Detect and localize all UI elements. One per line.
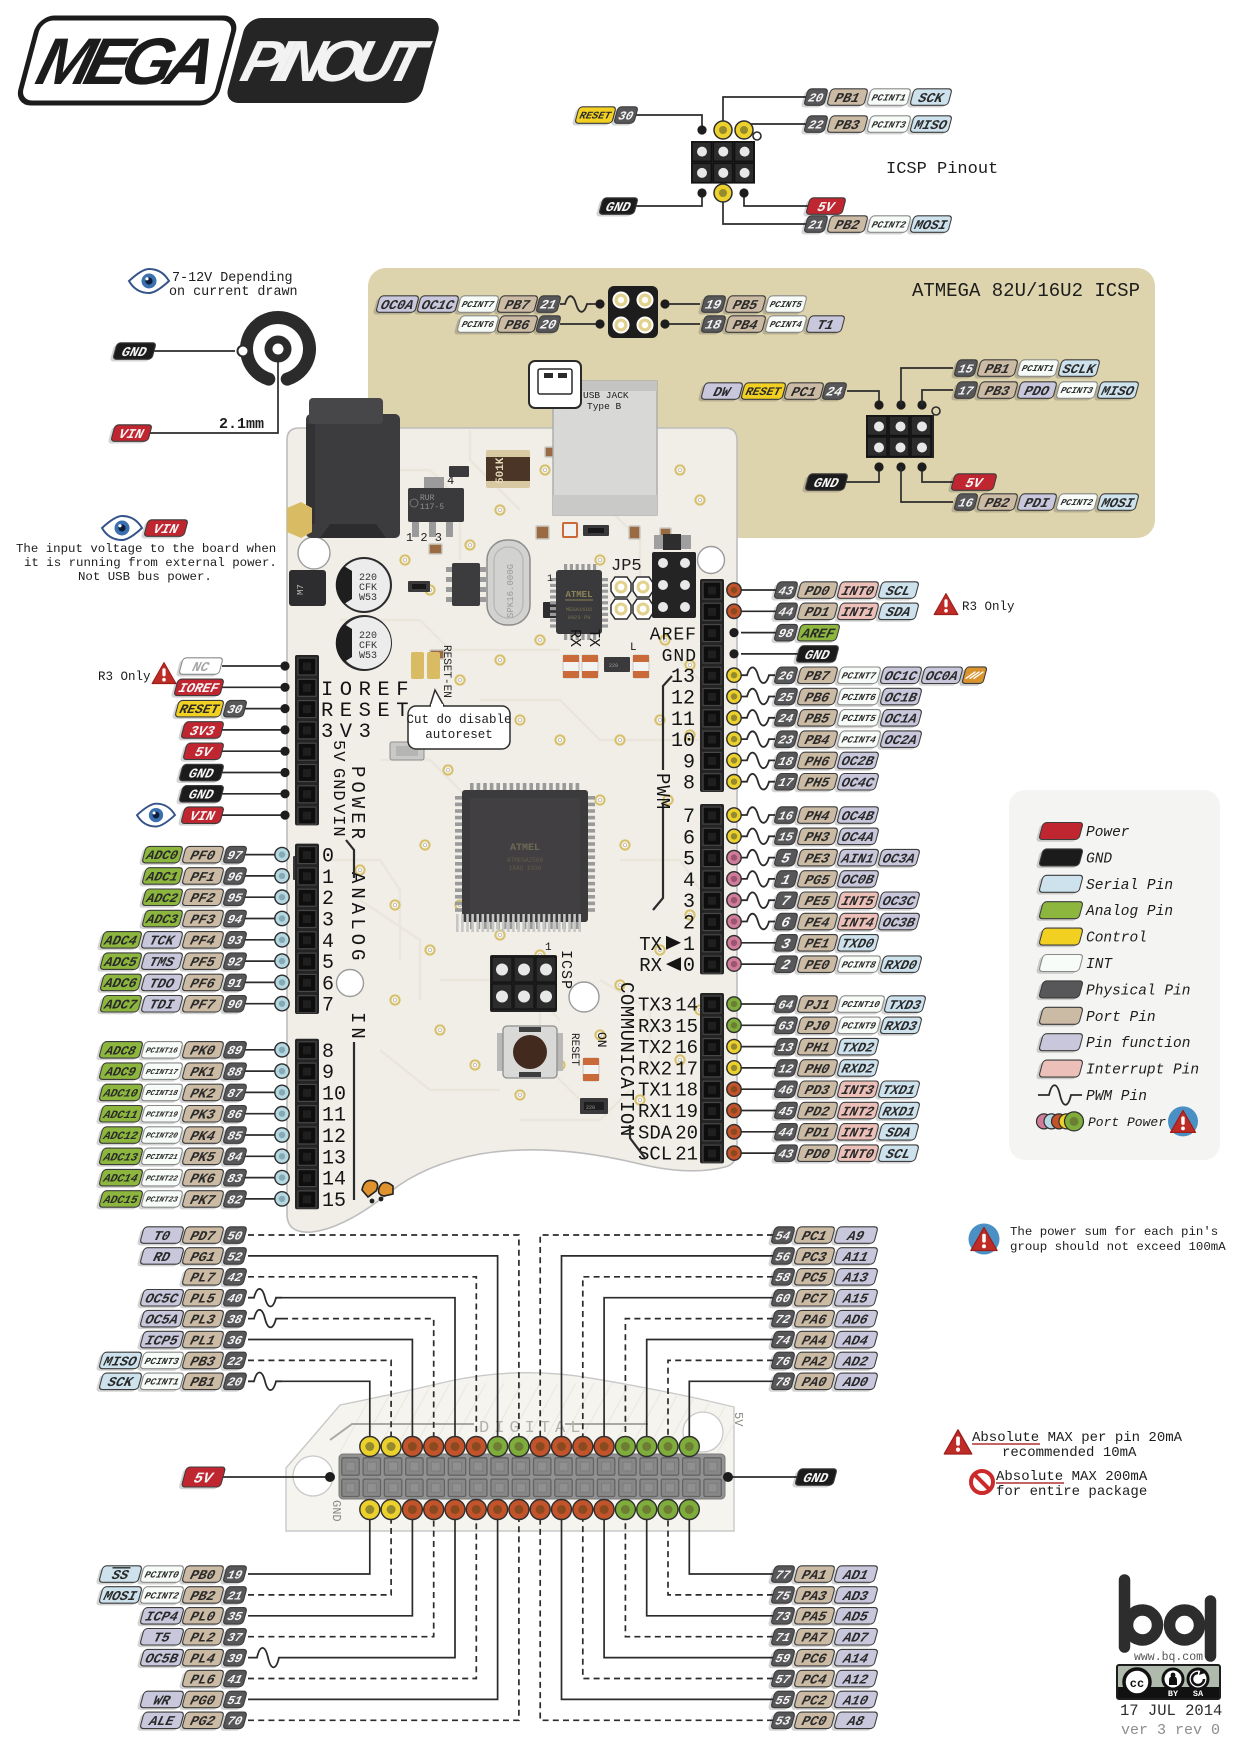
svg-text:OC1C: OC1C — [882, 670, 919, 685]
svg-text:PB1: PB1 — [188, 1376, 216, 1391]
svg-text:ADC9: ADC9 — [103, 1065, 138, 1080]
svg-text:0: 0 — [322, 846, 334, 869]
svg-text:9: 9 — [683, 751, 695, 774]
svg-text:ANALOG: ANALOG — [346, 872, 368, 964]
svg-text:TX1: TX1 — [638, 1080, 672, 1102]
svg-text:GND: GND — [187, 768, 216, 783]
svg-text:PC1: PC1 — [800, 1230, 828, 1245]
svg-text:16AU 1036: 16AU 1036 — [509, 865, 542, 872]
svg-text:PG0: PG0 — [188, 1694, 216, 1709]
svg-text:Analog Pin: Analog Pin — [1085, 904, 1173, 920]
svg-text:PB0: PB0 — [188, 1569, 216, 1584]
svg-text:ADC3: ADC3 — [144, 912, 180, 927]
svg-text:ICP5: ICP5 — [143, 1335, 180, 1350]
svg-text:PCINT10: PCINT10 — [841, 999, 882, 1010]
svg-text:PCINT5: PCINT5 — [768, 299, 803, 310]
svg-text:PCINT9: PCINT9 — [840, 1021, 877, 1032]
svg-text:17 JUL 2014: 17 JUL 2014 — [1120, 1702, 1222, 1720]
svg-text:AD1: AD1 — [840, 1569, 869, 1584]
svg-text:PK0: PK0 — [188, 1045, 216, 1060]
svg-text:AD3: AD3 — [840, 1590, 869, 1605]
svg-text:1 2 3: 1 2 3 — [406, 531, 442, 545]
svg-text:PB2: PB2 — [188, 1590, 216, 1605]
svg-text:PF2: PF2 — [188, 892, 216, 907]
svg-text:PB3: PB3 — [983, 385, 1011, 400]
svg-text:OC2B: OC2B — [839, 755, 875, 770]
svg-text:PB7: PB7 — [803, 670, 832, 685]
svg-text:INT0: INT0 — [839, 1148, 875, 1163]
svg-text:Cut do disable: Cut do disable — [406, 713, 511, 727]
svg-text:PD3: PD3 — [803, 1084, 831, 1099]
svg-text:Pin function: Pin function — [1086, 1036, 1190, 1052]
svg-text:PH6: PH6 — [803, 755, 831, 770]
svg-text:OC4B: OC4B — [839, 810, 875, 825]
svg-text:5V: 5V — [328, 740, 347, 762]
svg-text:Serial Pin: Serial Pin — [1086, 878, 1173, 894]
svg-text:recommended 10mA: recommended 10mA — [1002, 1445, 1137, 1461]
svg-text:group should not exceed 100mA: group should not exceed 100mA — [1010, 1240, 1226, 1254]
svg-text:PCINT2: PCINT2 — [143, 1590, 180, 1601]
svg-text:VIN: VIN — [117, 428, 146, 443]
svg-text:SA: SA — [1193, 1689, 1204, 1699]
svg-text:AD5: AD5 — [840, 1611, 870, 1626]
svg-text:PJ0: PJ0 — [803, 1020, 831, 1035]
svg-text:OC0A: OC0A — [379, 299, 415, 314]
svg-text:SDA: SDA — [884, 1127, 912, 1142]
svg-text:1: 1 — [683, 934, 695, 957]
svg-text:220: 220 — [586, 1105, 595, 1111]
svg-text:ICSP: ICSP — [557, 950, 574, 990]
svg-text:TX3: TX3 — [638, 995, 672, 1017]
svg-text:PL2: PL2 — [188, 1632, 216, 1647]
svg-text:SDA: SDA — [638, 1122, 673, 1144]
svg-text:PC5: PC5 — [800, 1272, 829, 1287]
svg-text:PCINT6: PCINT6 — [460, 319, 495, 330]
svg-text:BY: BY — [1168, 1689, 1179, 1699]
svg-text:PB7: PB7 — [503, 299, 532, 314]
svg-text:ADC11: ADC11 — [101, 1109, 139, 1122]
svg-text:AD6: AD6 — [840, 1314, 869, 1329]
svg-text:PF7: PF7 — [188, 999, 217, 1014]
svg-text:PB6: PB6 — [503, 319, 531, 334]
svg-text:PB4: PB4 — [731, 319, 759, 334]
svg-text:RESET-EN: RESET-EN — [440, 645, 452, 698]
svg-text:OC4A: OC4A — [839, 831, 875, 846]
svg-text:TX: TX — [639, 934, 662, 956]
svg-text:GND: GND — [801, 1472, 830, 1487]
svg-text:PE0: PE0 — [803, 959, 831, 974]
svg-text:A10: A10 — [840, 1694, 869, 1709]
svg-text:MOSI: MOSI — [1098, 497, 1136, 512]
svg-text:A11: A11 — [840, 1251, 869, 1266]
svg-text:PWM Pin: PWM Pin — [1086, 1089, 1147, 1105]
svg-text:GND: GND — [604, 201, 633, 216]
svg-text:PCINT21: PCINT21 — [145, 1154, 179, 1162]
svg-text:INT: INT — [1086, 957, 1113, 973]
svg-text:IOREF: IOREF — [321, 679, 415, 702]
svg-text:AD4: AD4 — [840, 1335, 869, 1350]
svg-text:PK4: PK4 — [188, 1130, 216, 1145]
svg-text:PC0: PC0 — [800, 1715, 828, 1730]
svg-text:0: 0 — [683, 955, 695, 978]
svg-text:MEGA16U2: MEGA16U2 — [566, 606, 592, 613]
svg-text:PG5: PG5 — [803, 874, 832, 889]
svg-text:PA2: PA2 — [800, 1355, 828, 1370]
svg-text:PCINT0: PCINT0 — [143, 1570, 180, 1581]
svg-text:501K: 501K — [495, 457, 507, 484]
svg-text:ATMEGA2560: ATMEGA2560 — [507, 857, 543, 864]
svg-text:OC0A: OC0A — [923, 670, 959, 685]
svg-text:R3 Only: R3 Only — [962, 600, 1015, 614]
svg-text:Port Power: Port Power — [1088, 1115, 1166, 1130]
svg-text:PF0: PF0 — [188, 850, 216, 865]
svg-text:ADC1: ADC1 — [144, 870, 180, 885]
svg-text:INT2: INT2 — [839, 1105, 875, 1120]
svg-text:OC5A: OC5A — [143, 1314, 179, 1329]
svg-text:TX: TX — [585, 629, 602, 647]
svg-text:RXD1: RXD1 — [880, 1105, 916, 1120]
svg-text:for entire package: for entire package — [996, 1484, 1147, 1500]
svg-text:USB JACK: USB JACK — [583, 390, 629, 401]
svg-text:RX: RX — [639, 955, 662, 977]
svg-text:2: 2 — [683, 913, 695, 936]
svg-text:ALE: ALE — [146, 1715, 176, 1730]
svg-text:PH3: PH3 — [803, 831, 831, 846]
svg-text:cc: cc — [1130, 1677, 1144, 1691]
svg-text:PG1: PG1 — [188, 1251, 216, 1266]
svg-text:COMMUNICATION: COMMUNICATION — [615, 982, 637, 1137]
svg-text:PH5: PH5 — [803, 777, 832, 792]
svg-text:Power: Power — [1086, 825, 1130, 841]
svg-text:PCINT17: PCINT17 — [145, 1069, 179, 1077]
svg-text:RESET: RESET — [321, 700, 415, 723]
svg-text:PG2: PG2 — [188, 1715, 216, 1730]
svg-text:2.1mm: 2.1mm — [219, 416, 264, 433]
svg-text:PE5: PE5 — [803, 895, 832, 910]
svg-text:PDI: PDI — [1022, 497, 1051, 512]
svg-text:SCLK: SCLK — [1060, 363, 1098, 378]
svg-text:DIGITAL: DIGITAL — [479, 1419, 585, 1438]
svg-text:7: 7 — [683, 806, 695, 829]
svg-text:R3 Only: R3 Only — [98, 670, 151, 684]
svg-text:L: L — [630, 642, 637, 654]
svg-text:IOREF: IOREF — [177, 682, 222, 697]
svg-text:PC2: PC2 — [800, 1694, 828, 1709]
svg-text:PCINT5: PCINT5 — [840, 713, 877, 724]
svg-text:13: 13 — [671, 666, 695, 689]
svg-text:M7: M7 — [296, 584, 306, 595]
svg-text:PB6: PB6 — [803, 692, 831, 707]
svg-text:JP5: JP5 — [611, 557, 642, 576]
svg-text:ATMEL: ATMEL — [565, 590, 592, 600]
svg-text:RXD3: RXD3 — [882, 1020, 918, 1035]
svg-text:PD1: PD1 — [803, 606, 831, 621]
svg-text:OC2A: OC2A — [882, 734, 918, 749]
svg-text:PCINT3: PCINT3 — [1059, 385, 1094, 396]
svg-text:PD7: PD7 — [188, 1230, 217, 1245]
svg-text:12: 12 — [322, 1126, 346, 1149]
svg-text:13: 13 — [322, 1147, 346, 1170]
svg-text:PB1: PB1 — [983, 363, 1011, 378]
svg-text:0923 PH: 0923 PH — [567, 614, 590, 621]
svg-text:TDO: TDO — [147, 977, 176, 992]
svg-text:10: 10 — [671, 730, 695, 753]
svg-text:6: 6 — [322, 973, 334, 996]
svg-text:The power sum for each pin's: The power sum for each pin's — [1010, 1225, 1218, 1239]
svg-text:A14: A14 — [840, 1653, 869, 1668]
svg-text:Physical Pin: Physical Pin — [1086, 983, 1190, 999]
svg-text:PE1: PE1 — [803, 938, 831, 953]
svg-text:POWER: POWER — [346, 766, 368, 843]
svg-text:1: 1 — [322, 867, 334, 890]
svg-text:TXD3: TXD3 — [886, 999, 922, 1014]
svg-text:7-12V Depending: 7-12V Depending — [172, 271, 293, 286]
svg-text:OC5C: OC5C — [143, 1293, 180, 1308]
svg-text:PL5: PL5 — [188, 1293, 217, 1308]
svg-text:RESET: RESET — [744, 385, 783, 399]
svg-text:AREF: AREF — [650, 626, 697, 646]
svg-text:PCINT7: PCINT7 — [840, 671, 877, 682]
svg-text:PC6: PC6 — [800, 1653, 828, 1668]
svg-text:5V: 5V — [731, 1412, 745, 1427]
svg-text:14: 14 — [322, 1169, 346, 1192]
svg-text:Not USB bus power.: Not USB bus power. — [78, 570, 212, 584]
svg-text:ADC4: ADC4 — [101, 935, 138, 950]
svg-text:RXD2: RXD2 — [839, 1063, 875, 1078]
svg-text:18: 18 — [675, 1080, 698, 1102]
svg-text:on current drawn: on current drawn — [169, 285, 298, 300]
svg-text:PH1: PH1 — [803, 1042, 831, 1057]
svg-text:ADC5: ADC5 — [101, 956, 138, 971]
svg-text:PC1: PC1 — [789, 386, 817, 401]
svg-text:220: 220 — [609, 663, 618, 669]
svg-text:PD0: PD0 — [803, 1148, 831, 1163]
svg-text:7: 7 — [322, 995, 334, 1018]
svg-text:PL0: PL0 — [188, 1611, 216, 1626]
svg-text:3: 3 — [322, 910, 334, 933]
svg-text:PCINT23: PCINT23 — [145, 1197, 179, 1205]
svg-text:GND: GND — [803, 649, 832, 664]
svg-text:INT1: INT1 — [839, 1127, 875, 1142]
svg-text:ICP4: ICP4 — [143, 1611, 179, 1626]
svg-text:PC3: PC3 — [800, 1251, 828, 1266]
svg-text:17: 17 — [675, 1058, 698, 1080]
svg-text:PB2: PB2 — [983, 497, 1011, 512]
svg-text:RX3: RX3 — [638, 1016, 672, 1038]
svg-text:RXD0: RXD0 — [882, 959, 918, 974]
svg-text:20: 20 — [675, 1122, 698, 1144]
svg-text:www.bq.com: www.bq.com — [1134, 1651, 1203, 1664]
svg-text:PC4: PC4 — [800, 1674, 828, 1689]
svg-text:MISO: MISO — [1098, 385, 1135, 400]
svg-text:A15: A15 — [840, 1293, 870, 1308]
svg-text:PL4: PL4 — [188, 1653, 216, 1668]
svg-text:RESET: RESET — [178, 702, 222, 717]
svg-text:PB5: PB5 — [803, 713, 832, 728]
svg-text:OC3B: OC3B — [880, 916, 916, 931]
svg-text:OC1C: OC1C — [419, 299, 456, 314]
svg-text:PH0: PH0 — [803, 1063, 831, 1078]
svg-text:OC3C: OC3C — [880, 895, 917, 910]
svg-text:OC4C: OC4C — [839, 777, 876, 792]
svg-text:RESET: RESET — [578, 111, 613, 123]
svg-text:VIN: VIN — [328, 804, 347, 838]
svg-text:117-5: 117-5 — [420, 503, 444, 512]
svg-text:PCINT4: PCINT4 — [840, 735, 877, 746]
svg-text:PJ1: PJ1 — [803, 999, 831, 1014]
svg-text:GND: GND — [120, 346, 149, 361]
svg-text:MEGA: MEGA — [29, 25, 225, 99]
svg-text:PK1: PK1 — [188, 1066, 216, 1081]
svg-text:ATMEL: ATMEL — [510, 843, 540, 854]
svg-text:AREF: AREF — [799, 628, 837, 643]
svg-text:ADC2: ADC2 — [144, 891, 180, 906]
svg-text:PD2: PD2 — [803, 1106, 831, 1121]
svg-text:PCINT22: PCINT22 — [145, 1175, 179, 1183]
svg-text:RX: RX — [566, 629, 583, 647]
svg-text:PE4: PE4 — [803, 917, 831, 932]
svg-text:PCINT1: PCINT1 — [143, 1377, 180, 1388]
svg-text:Port Pin: Port Pin — [1086, 1010, 1156, 1026]
svg-text:INT3: INT3 — [839, 1084, 875, 1099]
svg-text:PH4: PH4 — [803, 810, 831, 825]
svg-text:8: 8 — [683, 773, 695, 796]
svg-text:PA4: PA4 — [800, 1335, 828, 1350]
svg-text:OC0B: OC0B — [839, 874, 875, 889]
svg-text:4: 4 — [322, 931, 334, 954]
svg-text:ADC7: ADC7 — [101, 999, 139, 1014]
svg-text:4: 4 — [683, 870, 695, 893]
svg-text:OC1B: OC1B — [882, 691, 918, 706]
svg-text:PK6: PK6 — [188, 1173, 216, 1188]
svg-text:PK2: PK2 — [188, 1087, 216, 1102]
svg-text:AD2: AD2 — [840, 1355, 869, 1370]
svg-text:INT5: INT5 — [839, 895, 875, 910]
svg-text:autoreset: autoreset — [425, 728, 493, 742]
svg-text:PL7: PL7 — [188, 1272, 217, 1287]
svg-text:SPK16.000G: SPK16.000G — [506, 564, 516, 618]
svg-text:PCINT3: PCINT3 — [143, 1356, 180, 1367]
svg-text:PCINT1: PCINT1 — [870, 93, 907, 104]
svg-text:PCINT6: PCINT6 — [840, 692, 877, 703]
svg-text:ADC10: ADC10 — [101, 1088, 139, 1101]
svg-text:Control: Control — [1086, 931, 1147, 947]
svg-text:VIN: VIN — [151, 523, 180, 538]
svg-text:GND: GND — [328, 768, 347, 802]
svg-text:OC1A: OC1A — [882, 713, 918, 728]
svg-text:ON: ON — [594, 1032, 609, 1048]
svg-text:PB5: PB5 — [731, 299, 760, 314]
svg-text:ADC6: ADC6 — [101, 977, 138, 992]
svg-text:PCINT4: PCINT4 — [768, 319, 803, 330]
svg-text:PD1: PD1 — [803, 1127, 831, 1142]
svg-text:PL1: PL1 — [188, 1335, 216, 1350]
svg-text:Interrupt Pin: Interrupt Pin — [1086, 1063, 1199, 1079]
svg-text:PF5: PF5 — [188, 956, 217, 971]
svg-text:6: 6 — [683, 827, 695, 850]
svg-text:PCINT20: PCINT20 — [145, 1133, 179, 1141]
svg-text:TXD1: TXD1 — [880, 1084, 916, 1099]
svg-text:TXD0: TXD0 — [839, 938, 875, 953]
svg-text:3: 3 — [683, 891, 695, 914]
svg-text:PK7: PK7 — [188, 1194, 217, 1209]
svg-text:PB3: PB3 — [188, 1355, 216, 1370]
svg-text:TMS: TMS — [147, 956, 176, 971]
svg-text:ADC12: ADC12 — [101, 1130, 139, 1143]
svg-text:ver 3 rev 0: ver 3 rev 0 — [1121, 1722, 1220, 1739]
svg-text:9: 9 — [322, 1062, 334, 1085]
svg-text:PD0: PD0 — [803, 585, 831, 600]
svg-text:SDA: SDA — [884, 606, 912, 621]
svg-text:PB2: PB2 — [833, 219, 861, 234]
svg-text:TXD2: TXD2 — [839, 1042, 875, 1057]
svg-text:PA0: PA0 — [800, 1376, 828, 1391]
svg-text:AD7: AD7 — [840, 1632, 870, 1647]
svg-text:OC3A: OC3A — [880, 853, 916, 868]
svg-text:PC7: PC7 — [800, 1293, 829, 1308]
svg-text:2: 2 — [322, 888, 334, 911]
svg-text:12: 12 — [671, 688, 695, 711]
svg-text:11: 11 — [322, 1105, 346, 1128]
svg-text:PCINT18: PCINT18 — [145, 1090, 179, 1098]
svg-text:IN: IN — [346, 1012, 368, 1043]
svg-text:VIN: VIN — [188, 810, 217, 825]
svg-text:PINOUT: PINOUT — [235, 29, 437, 94]
svg-text:OC5B: OC5B — [143, 1653, 180, 1668]
svg-text:PK3: PK3 — [188, 1109, 216, 1124]
svg-text:PF3: PF3 — [188, 914, 216, 929]
svg-text:INT1: INT1 — [839, 606, 875, 621]
svg-text:The input voltage to the board: The input voltage to the board when — [16, 542, 276, 556]
svg-text:MOSI: MOSI — [101, 1590, 139, 1605]
svg-text:Type B: Type B — [587, 401, 622, 412]
svg-text:ADC14: ADC14 — [101, 1173, 139, 1186]
svg-text:PCINT1: PCINT1 — [1020, 363, 1055, 374]
svg-text:ICSP Pinout: ICSP Pinout — [886, 160, 998, 179]
svg-text:3V3: 3V3 — [188, 725, 216, 740]
svg-text:5: 5 — [322, 952, 334, 975]
svg-text:10: 10 — [322, 1083, 346, 1106]
svg-text:ADC8: ADC8 — [103, 1043, 138, 1058]
svg-text:PA3: PA3 — [800, 1590, 828, 1605]
svg-text:MISO: MISO — [101, 1355, 139, 1370]
svg-text:PF6: PF6 — [188, 977, 216, 992]
svg-text:PF4: PF4 — [188, 935, 216, 950]
svg-text:16: 16 — [675, 1037, 698, 1059]
svg-text:15: 15 — [675, 1016, 698, 1038]
svg-text:RX2: RX2 — [638, 1058, 672, 1080]
svg-text:A12: A12 — [840, 1674, 869, 1689]
svg-text:PA7: PA7 — [800, 1632, 829, 1647]
svg-text:INT0: INT0 — [839, 585, 875, 600]
svg-text:GND: GND — [812, 477, 841, 492]
svg-text:W53: W53 — [359, 651, 377, 662]
svg-text:PA6: PA6 — [800, 1314, 828, 1329]
svg-text:AIN1: AIN1 — [838, 853, 875, 868]
svg-text:INT4: INT4 — [839, 916, 875, 931]
svg-text:PL6: PL6 — [188, 1674, 216, 1689]
svg-text:PF1: PF1 — [188, 871, 216, 886]
svg-text:RUR: RUR — [420, 494, 435, 503]
svg-text:GND: GND — [1086, 851, 1112, 867]
svg-text:5: 5 — [683, 849, 695, 872]
svg-text:PCINT8: PCINT8 — [840, 960, 877, 971]
svg-text:TX2: TX2 — [638, 1037, 672, 1059]
svg-text:TDI: TDI — [147, 999, 176, 1014]
svg-text:PA5: PA5 — [800, 1611, 829, 1626]
svg-text:PL3: PL3 — [188, 1314, 216, 1329]
svg-text:PK5: PK5 — [188, 1151, 217, 1166]
